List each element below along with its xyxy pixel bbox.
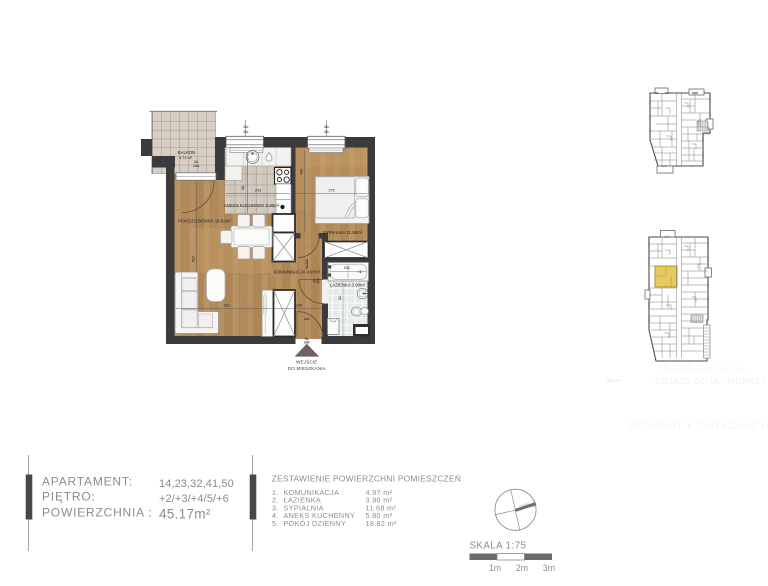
svg-text:180: 180 xyxy=(296,303,302,307)
svg-text:243: 243 xyxy=(255,188,261,192)
svg-text:8̶0̶ ̶2̶0̶5̶: 8̶0̶ ̶2̶0̶5̶ xyxy=(305,258,309,269)
svg-text:WEJŚCIE: WEJŚCIE xyxy=(296,358,317,365)
svg-text:2m: 2m xyxy=(516,563,528,573)
svg-text:5.: 5. xyxy=(272,519,279,528)
svg-text:DOJAZD DO UL. MOKREJ: DOJAZD DO UL. MOKREJ xyxy=(655,377,765,386)
svg-text:APARTAMENT:: APARTAMENT: xyxy=(42,475,133,489)
svg-text:DO MIESZKANIA: DO MIESZKANIA xyxy=(288,366,326,371)
svg-text:ZESTAWIENIE POWIERZCHNI POMIE: ZESTAWIENIE POWIERZCHNI POMIESZCZEŃ xyxy=(272,474,461,484)
svg-text:3m: 3m xyxy=(543,563,555,573)
svg-text:POWIERZCHNIA :: POWIERZCHNIA : xyxy=(42,506,153,520)
svg-text:18.82 m²: 18.82 m² xyxy=(366,519,397,528)
svg-text:POKÓJ DZIENNY 18.82m²: POKÓJ DZIENNY 18.82m² xyxy=(178,219,231,224)
svg-text:14,23,32,41,50: 14,23,32,41,50 xyxy=(159,478,234,490)
svg-text:PÓŁNOCNA CZĘŚĆ BUDYNKU: PÓŁNOCNA CZĘŚĆ BUDYNKU xyxy=(659,365,749,373)
svg-text:ANEKS KUCHENNY 5.80m²: ANEKS KUCHENNY 5.80m² xyxy=(224,203,280,208)
svg-text:155: 155 xyxy=(344,266,350,270)
svg-text:+2/+3/+4/5/+6: +2/+3/+4/5/+6 xyxy=(159,493,229,505)
svg-text:SKALA 1:75: SKALA 1:75 xyxy=(470,541,527,552)
svg-text:3.71 m²: 3.71 m² xyxy=(179,155,193,160)
svg-text:363: 363 xyxy=(223,303,229,307)
svg-text:1m: 1m xyxy=(489,563,501,573)
svg-text:POKÓJ DZIENNY: POKÓJ DZIENNY xyxy=(284,519,346,528)
svg-text:45.17m²: 45.17m² xyxy=(159,506,211,521)
svg-text:SYPIALNIA 11.68m²: SYPIALNIA 11.68m² xyxy=(323,230,363,235)
svg-text:ŁAZIENKA 3.90m²: ŁAZIENKA 3.90m² xyxy=(330,283,366,288)
svg-text:KOMUNIKACJA 4.97m²: KOMUNIKACJA 4.97m² xyxy=(274,270,321,275)
svg-text:SCHEMAT KONDYGNACJI: SCHEMAT KONDYGNACJI xyxy=(629,421,768,432)
svg-text:275: 275 xyxy=(328,188,334,192)
svg-text:PIĘTRO:: PIĘTRO: xyxy=(42,490,96,504)
